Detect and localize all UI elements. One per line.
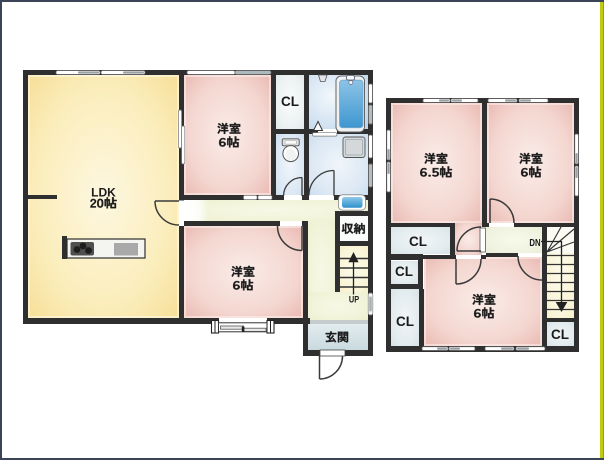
svg-text:DN: DN [529, 237, 540, 248]
svg-text:CL: CL [551, 327, 569, 342]
svg-text:CL: CL [281, 94, 299, 109]
svg-text:CL: CL [396, 314, 414, 329]
svg-text:CL: CL [395, 264, 413, 279]
svg-text:UP: UP [349, 294, 360, 305]
svg-text:CL: CL [409, 234, 427, 249]
